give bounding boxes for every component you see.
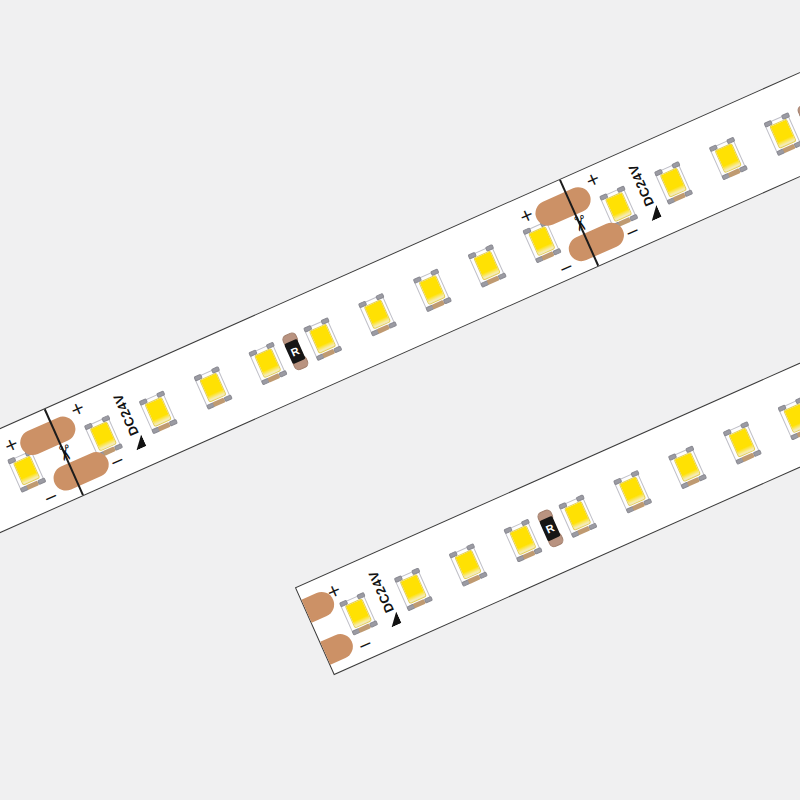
polarity-minus-label: − (41, 487, 61, 508)
polarity-minus-label: − (355, 634, 375, 655)
smd-led (304, 319, 342, 361)
smd-led (413, 270, 451, 312)
smd-led (139, 392, 177, 434)
smd-led (613, 471, 651, 513)
smd-led (394, 569, 432, 611)
smd-led (358, 294, 396, 336)
polarity-minus-label: − (556, 257, 576, 278)
led-strip-product-image: ✂++−−✂++−−DC24VDC24VRR✂++−−+−DC24VR (0, 0, 800, 800)
polarity-plus-label: + (583, 169, 603, 190)
resistor: R (280, 331, 309, 372)
smd-led (194, 367, 232, 409)
voltage-label: DC24V (626, 162, 656, 208)
polarity-minus-label: − (107, 451, 127, 472)
smd-led (778, 398, 800, 440)
smd-led (449, 544, 487, 586)
polarity-plus-label: + (67, 398, 87, 419)
smd-led (8, 450, 46, 492)
smd-led (504, 520, 542, 562)
polarity-plus-label: + (1, 434, 21, 455)
smd-led (764, 114, 800, 156)
smd-led (523, 221, 561, 263)
smd-led (559, 496, 597, 538)
smd-led (468, 245, 506, 287)
smd-led (339, 593, 377, 635)
voltage-label-triangle-icon (131, 434, 146, 450)
solder-pad-negative (320, 630, 357, 665)
polarity-plus-label: + (517, 205, 537, 226)
smd-led (709, 138, 747, 180)
voltage-label-triangle-icon (646, 205, 661, 221)
smd-led (654, 162, 692, 204)
polarity-minus-label: − (622, 221, 642, 242)
resistor: R (535, 508, 564, 549)
smd-led (668, 447, 706, 489)
smd-led (723, 422, 761, 464)
smd-led (249, 343, 287, 385)
voltage-label: DC24V (111, 392, 141, 438)
voltage-label: DC24V (366, 569, 396, 615)
voltage-label-triangle-icon (386, 611, 401, 627)
